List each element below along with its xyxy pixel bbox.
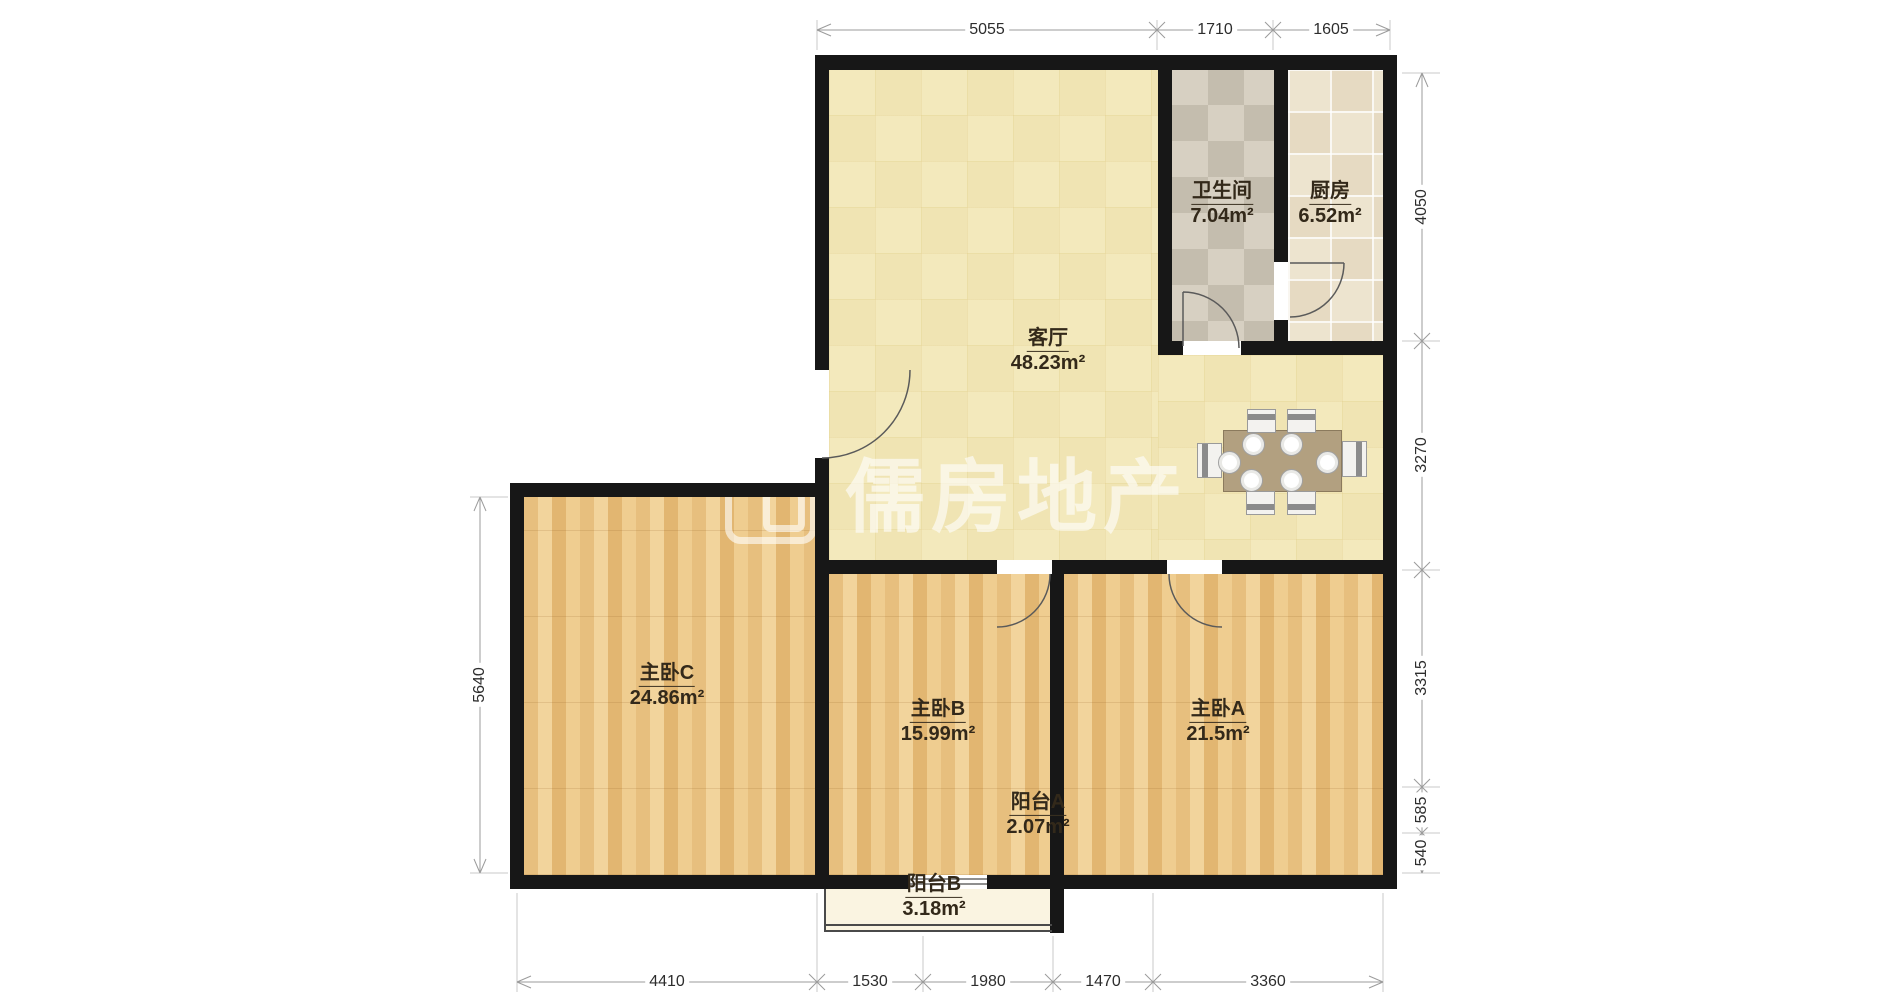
room-kitchen-area: 6.52m²: [1298, 205, 1361, 229]
dim-bottom-0: 4410: [645, 973, 689, 991]
room-balconyA-label: 阳台A 2.07m²: [1006, 791, 1069, 839]
bedroomB-door-arc: [997, 574, 1050, 627]
bathroom-door-arc: [1183, 292, 1239, 348]
dim-bottom-3: 1470: [1081, 973, 1125, 991]
kitchen-door-arc: [1290, 263, 1344, 317]
room-kitchen-name: 厨房: [1309, 180, 1351, 205]
dim-bottom-2: 1980: [966, 973, 1010, 991]
room-bedroomB-label: 主卧B 15.99m²: [901, 698, 976, 746]
dim-top-1: 1710: [1193, 21, 1237, 39]
dim-top-0: 5055: [965, 21, 1009, 39]
dim-top-2: 1605: [1309, 21, 1353, 39]
bedroomA-door-arc: [1169, 574, 1222, 627]
room-bedroomC-label: 主卧C 24.86m²: [630, 662, 705, 710]
dining-chair: [1287, 409, 1316, 433]
room-bedroomC-area: 24.86m²: [630, 687, 705, 711]
room-living-label: 客厅 48.23m²: [1011, 327, 1086, 375]
plan-lines-overlay: [0, 0, 1902, 1000]
dim-right-3: 585: [1413, 793, 1431, 828]
plate-icon: [1240, 469, 1263, 492]
room-living-area: 48.23m²: [1011, 352, 1086, 376]
room-bedroomA-name: 主卧A: [1190, 698, 1246, 723]
room-balconyA-area: 2.07m²: [1006, 816, 1069, 840]
plate-icon: [1218, 451, 1241, 474]
dim-right-1: 3270: [1413, 433, 1431, 477]
room-bedroomC-name: 主卧C: [639, 662, 695, 687]
dim-bottom-4: 3360: [1246, 973, 1290, 991]
dining-chair: [1247, 409, 1276, 433]
room-balconyA-name: 阳台A: [1010, 791, 1066, 816]
room-bedroomB-area: 15.99m²: [901, 723, 976, 747]
dim-right-4: 540: [1413, 836, 1431, 871]
room-bathroom-area: 7.04m²: [1190, 205, 1253, 229]
dim-left-0: 5640: [471, 663, 489, 707]
room-bedroomA-label: 主卧A 21.5m²: [1186, 698, 1249, 746]
dining-chair: [1246, 491, 1275, 515]
dim-right-0: 4050: [1413, 185, 1431, 229]
dim-bottom-1: 1530: [848, 973, 892, 991]
plate-icon: [1280, 469, 1303, 492]
room-balconyB-name: 阳台B: [906, 873, 962, 898]
room-balconyB-label: 阳台B 3.18m²: [902, 873, 965, 921]
plate-icon: [1280, 433, 1303, 456]
dining-chair: [1342, 441, 1367, 477]
plate-icon: [1316, 451, 1339, 474]
room-bathroom-label: 卫生间 7.04m²: [1190, 180, 1253, 228]
dining-chair: [1287, 491, 1316, 515]
floor-plan-canvas: 儒房地产: [0, 0, 1902, 1000]
room-bedroomB-name: 主卧B: [910, 698, 966, 723]
room-bedroomA-area: 21.5m²: [1186, 723, 1249, 747]
room-balconyB-area: 3.18m²: [902, 898, 965, 922]
room-kitchen-label: 厨房 6.52m²: [1298, 180, 1361, 228]
room-bathroom-name: 卫生间: [1191, 180, 1253, 205]
dim-right-2: 3315: [1413, 656, 1431, 700]
entry-door-arc: [822, 370, 910, 458]
plate-icon: [1242, 433, 1265, 456]
room-living-name: 客厅: [1027, 327, 1069, 352]
